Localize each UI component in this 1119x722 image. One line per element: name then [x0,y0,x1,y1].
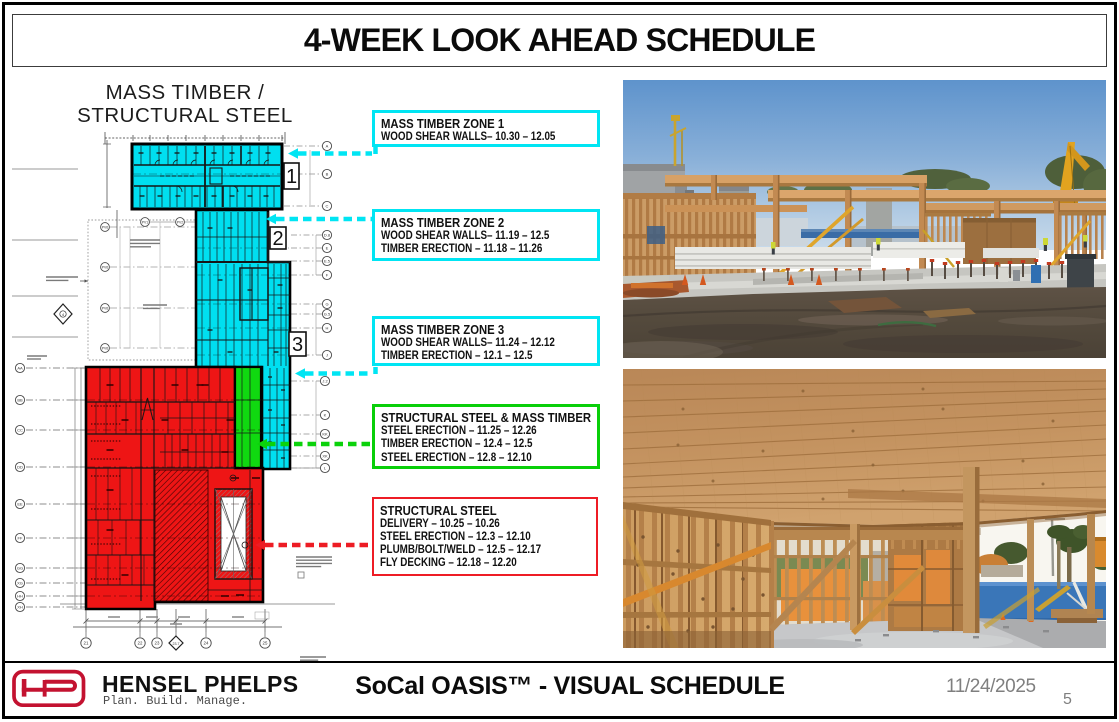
svg-text:XK: XK [322,453,328,458]
svg-text:DD: DD [17,464,23,469]
svg-text:C: C [326,203,329,208]
svg-text:EE: EE [17,501,23,506]
svg-text:KK: KK [322,431,328,436]
svg-text:22: 22 [138,640,143,645]
svg-text:FF: FF [18,535,23,540]
svg-text:XH: XH [17,604,23,609]
svg-text:PV6: PV6 [102,346,109,350]
svg-text:CC: CC [17,427,23,432]
svg-text:PV2: PV2 [177,220,184,224]
svg-text:XG: XG [17,580,23,585]
svg-text:AA: AA [17,365,23,370]
svg-text:J.2: J.2 [322,378,328,383]
svg-text:D.8: D.8 [324,232,331,237]
svg-text:B: B [326,171,329,176]
svg-text:BB: BB [17,397,23,402]
svg-text:H: H [326,325,329,330]
svg-text:PV6: PV6 [102,225,109,229]
svg-text:25: 25 [263,640,268,645]
svg-text:24: 24 [204,640,209,645]
svg-text:E.5: E.5 [324,258,331,263]
svg-text:3: 3 [292,334,303,356]
svg-text:PV1: PV1 [142,220,149,224]
svg-text:23: 23 [155,640,160,645]
svg-text:PV6: PV6 [102,265,109,269]
svg-text:PV6: PV6 [102,306,109,310]
svg-text:HH: HH [17,593,23,598]
svg-text:1: 1 [286,166,297,188]
svg-text:2: 2 [272,228,283,250]
svg-text:E: E [326,245,329,250]
svg-text:J: J [326,352,328,357]
svg-text:GG: GG [17,565,23,570]
svg-text:G: G [325,301,328,306]
svg-text:K: K [324,412,327,417]
svg-text:23.7: 23.7 [173,642,180,646]
svg-text:A: A [326,143,329,148]
svg-text:G.5: G.5 [324,311,331,316]
svg-text:21: 21 [84,640,89,645]
